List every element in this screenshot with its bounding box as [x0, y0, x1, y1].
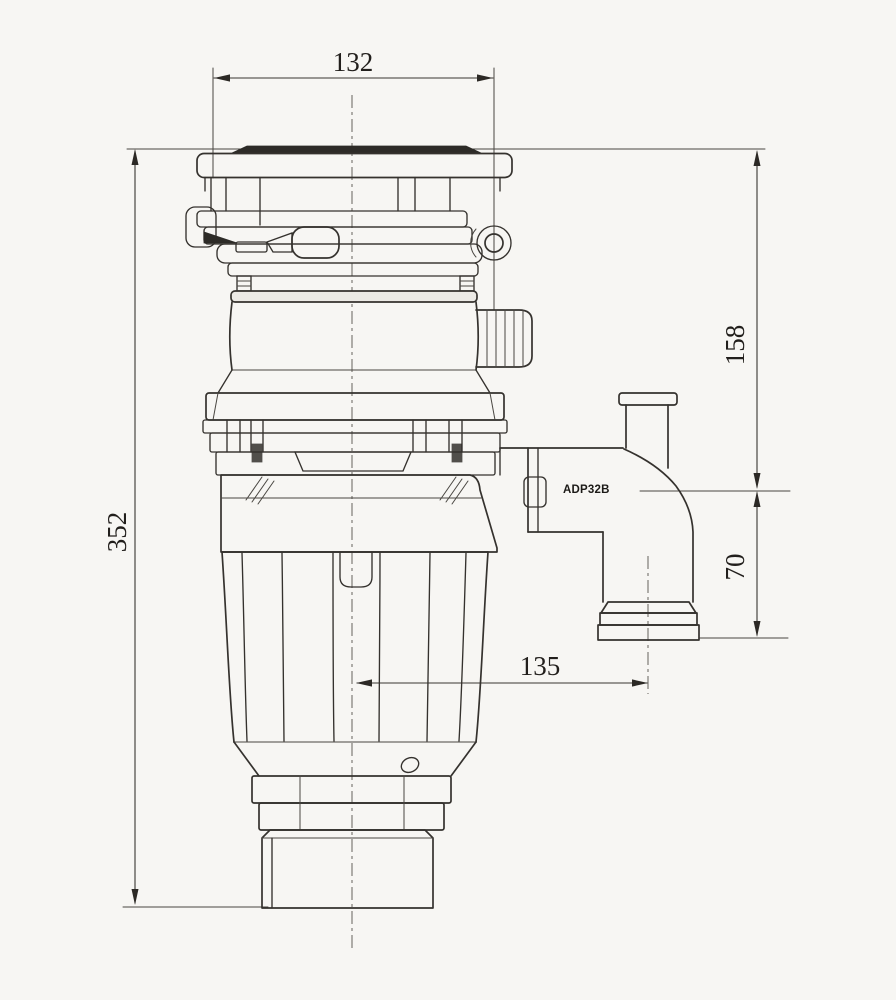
hopper-section: [230, 291, 532, 370]
dim-label-70: 70: [720, 554, 750, 581]
dim-label-352: 352: [102, 512, 132, 553]
discharge-outlet: ADP32B: [500, 448, 623, 532]
grind-chamber-ring: [221, 448, 500, 552]
mounting-studs: [211, 178, 450, 226]
motor-housing: [222, 552, 488, 830]
dimension-top-width: 132: [213, 47, 494, 310]
hopper-rim: [231, 291, 477, 302]
sink-mount-assembly: [186, 146, 512, 291]
sink-flange: [197, 154, 512, 178]
motor-left-wall: [222, 552, 234, 742]
cam-lever: [236, 227, 339, 258]
dimension-upper-height: 158: [720, 150, 761, 489]
dim-label-135: 135: [520, 651, 561, 681]
recessed-panel: [295, 452, 411, 471]
left-wedge-hatch: [246, 477, 274, 504]
adapter-model-label: ADP32B: [563, 484, 610, 496]
swivel-boss: [471, 226, 511, 260]
spring-left: [237, 276, 251, 291]
spring-right: [460, 276, 474, 291]
elbow-outlet-flange: [598, 602, 699, 640]
motor-right-wall: [476, 552, 488, 742]
clamp-collar-section: [203, 370, 507, 504]
elbow-outer-bend: [624, 449, 693, 602]
bottom-outlet-tube: [262, 830, 433, 908]
dishwasher-inlet: [476, 310, 532, 367]
discharge-elbow: [598, 393, 699, 640]
motor-ribs: [242, 553, 466, 741]
end-bell-cone: [234, 742, 476, 776]
dim-label-158: 158: [720, 325, 750, 366]
elbow-top-cap: [619, 393, 677, 405]
right-wedge-hatch: [440, 477, 468, 504]
upper-mount-ring: [197, 211, 467, 227]
drain-hole: [399, 755, 421, 775]
hopper-right-wall: [476, 302, 478, 370]
dim-label-132: 132: [333, 47, 374, 77]
lower-end-bell: [252, 776, 451, 830]
dimension-outlet-drop: 70: [640, 491, 790, 638]
lower-mount-ring: [217, 244, 482, 263]
hopper-left-wall: [230, 302, 232, 370]
upper-collar-flange: [206, 393, 504, 420]
dimension-outlet-offset: 135: [356, 651, 648, 687]
splash-gasket: [232, 146, 481, 153]
technical-drawing-canvas: 132 352 158 70 135: [0, 0, 896, 1000]
drawing-sheet: 132 352 158 70 135: [0, 0, 896, 1000]
motor-top-notch: [340, 552, 372, 587]
